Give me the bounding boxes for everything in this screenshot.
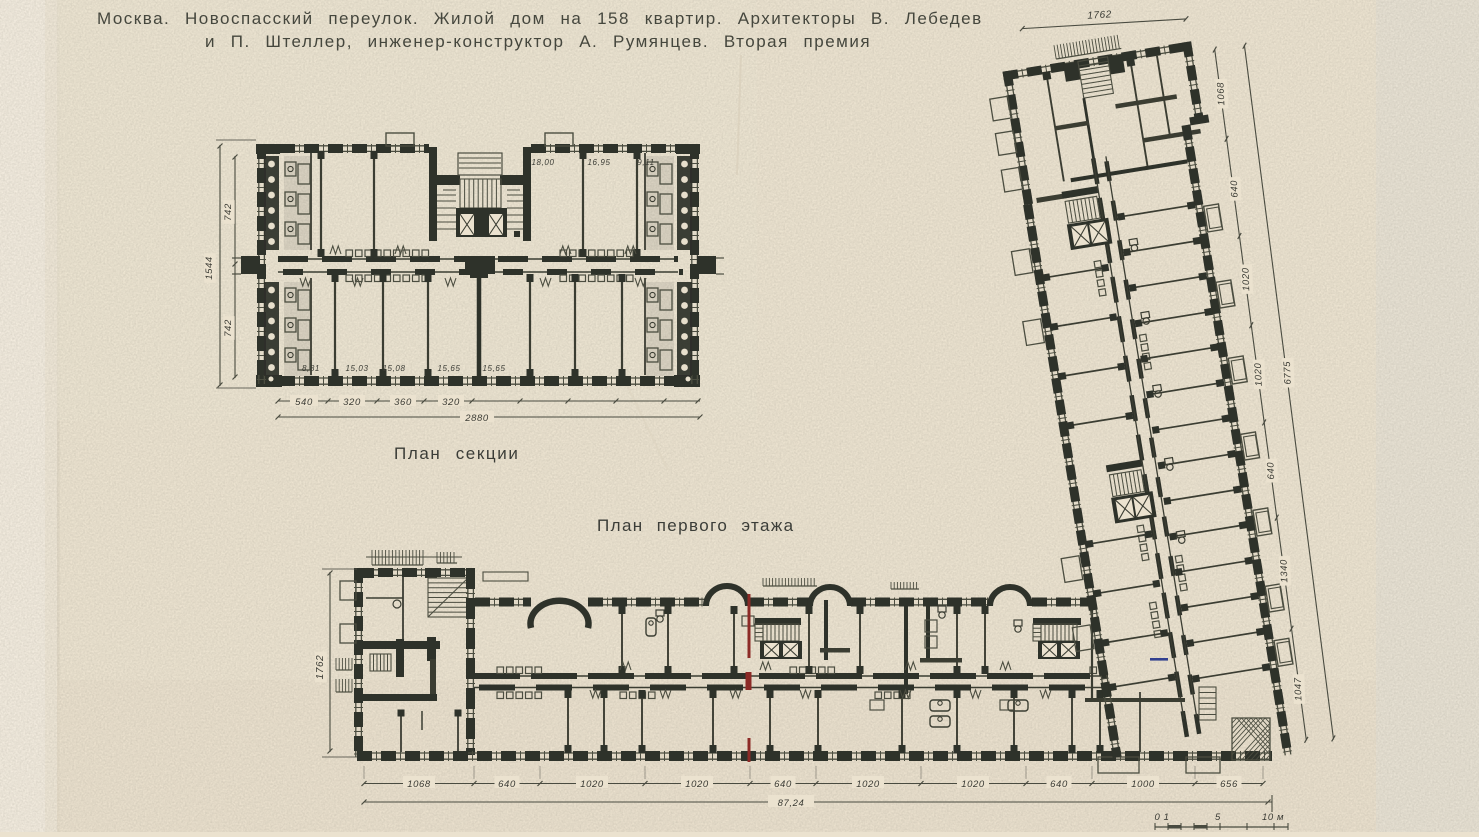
svg-text:656: 656: [1220, 779, 1238, 790]
svg-text:1544: 1544: [204, 256, 215, 280]
svg-text:1047: 1047: [1293, 677, 1305, 701]
svg-text:8,81: 8,81: [302, 364, 320, 373]
svg-text:16,95: 16,95: [587, 158, 610, 167]
svg-text:18,00: 18,00: [531, 158, 554, 167]
svg-text:1020: 1020: [580, 779, 604, 790]
svg-text:1000: 1000: [1131, 779, 1155, 790]
svg-text:640: 640: [1229, 180, 1241, 198]
svg-text:15,03: 15,03: [345, 364, 368, 373]
svg-text:0 1: 0 1: [1154, 812, 1169, 823]
svg-text:1020: 1020: [856, 779, 880, 790]
svg-text:87,24: 87,24: [778, 798, 805, 809]
svg-text:1340: 1340: [1279, 559, 1291, 583]
svg-text:1020: 1020: [1253, 362, 1265, 386]
svg-text:1020: 1020: [961, 779, 985, 790]
svg-text:План секции: План секции: [394, 444, 519, 463]
svg-text:320: 320: [343, 397, 361, 408]
svg-text:1020: 1020: [1240, 267, 1252, 291]
svg-text:640: 640: [774, 779, 792, 790]
svg-text:1020: 1020: [685, 779, 709, 790]
svg-text:742: 742: [223, 203, 234, 221]
svg-text:6775: 6775: [1282, 361, 1294, 385]
svg-text:1762: 1762: [315, 655, 326, 680]
svg-text:1068: 1068: [1215, 82, 1227, 106]
svg-text:1762: 1762: [1087, 9, 1112, 21]
svg-text:10 м: 10 м: [1262, 812, 1284, 823]
svg-text:320: 320: [442, 397, 460, 408]
svg-text:540: 540: [295, 397, 313, 408]
svg-text:360: 360: [394, 397, 412, 408]
svg-text:2880: 2880: [464, 413, 489, 424]
svg-text:1068: 1068: [407, 779, 431, 790]
svg-text:15,65: 15,65: [482, 364, 505, 373]
svg-text:Москва. Новоспасский переуло: Москва. Новоспасский переулок. Жилой дом…: [97, 9, 983, 28]
svg-text:15,08: 15,08: [382, 364, 405, 373]
svg-text:640: 640: [1265, 461, 1277, 479]
svg-text:и П. Штеллер, инженер-конст: и П. Штеллер, инженер-конструктор А. Рум…: [205, 32, 871, 51]
svg-text:5: 5: [1215, 812, 1221, 823]
svg-text:640: 640: [1050, 779, 1068, 790]
svg-text:15,65: 15,65: [437, 364, 460, 373]
svg-text:План первого этажа: План первого этажа: [597, 516, 795, 535]
svg-text:9,11: 9,11: [637, 158, 654, 167]
svg-text:742: 742: [223, 319, 234, 337]
svg-text:640: 640: [498, 779, 516, 790]
